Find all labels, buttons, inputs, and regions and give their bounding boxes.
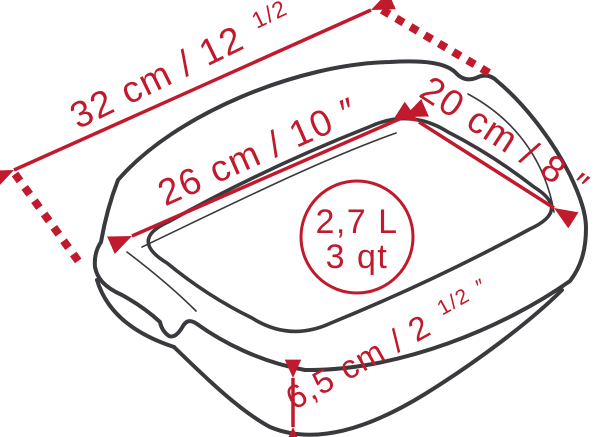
label-outer-length-unit: ″ <box>291 0 311 12</box>
label-inner-length: 26 cm / 10 ″ <box>152 89 364 214</box>
label-inner-length-unit: ″ <box>334 89 364 132</box>
bakeware-dimension-diagram: 32 cm / 12 1/2 ″ 26 cm / 10 ″ 20 cm / 8 … <box>0 0 600 437</box>
dimension-annotations: 32 cm / 12 1/2 ″ 26 cm / 10 ″ 20 cm / 8 … <box>14 0 597 427</box>
label-inner-width-main: 20 cm / 8 <box>413 68 574 193</box>
capacity-quarts: 3 qt <box>326 238 389 276</box>
label-height-fraction: 1/2 <box>433 284 474 320</box>
extension-dotted-line-left <box>15 174 79 262</box>
capacity-liters: 2,7 L <box>315 203 398 241</box>
dish-left-handle-underside <box>97 280 174 347</box>
label-outer-length-fraction: 1/2 <box>247 0 291 34</box>
label-outer-length: 32 cm / 12 1/2 ″ <box>58 0 317 137</box>
label-height-unit: ″ <box>472 274 491 298</box>
diagram-svg: 32 cm / 12 1/2 ″ 26 cm / 10 ″ 20 cm / 8 … <box>0 0 600 437</box>
